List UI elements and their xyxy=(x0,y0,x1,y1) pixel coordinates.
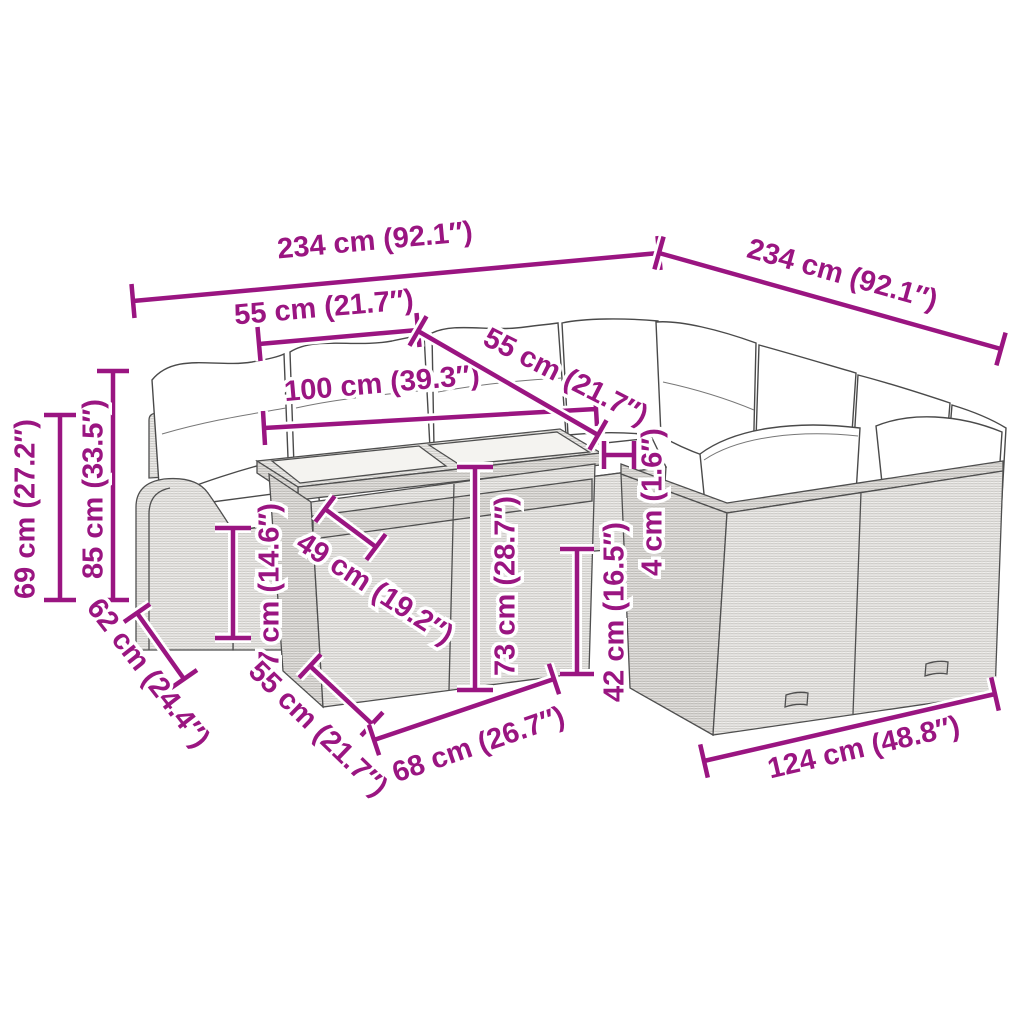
dimension-diagram: 234 cm (92.1″) 234 cm (92.1″) 55 cm (21.… xyxy=(0,0,1024,1024)
dim-69: 69 cm (27.2″) xyxy=(10,415,76,600)
dim-85: 85 cm (33.5″) xyxy=(78,371,129,600)
sofa-front-panel-right xyxy=(713,471,1003,735)
dim-label-37: 37 cm (14.6″) xyxy=(254,503,286,683)
panel-handle-1 xyxy=(785,692,808,707)
diagram-canvas: 234 cm (92.1″) 234 cm (92.1″) 55 cm (21.… xyxy=(0,0,1024,1024)
dim-label-42: 42 cm (16.5″) xyxy=(599,522,631,702)
panel-handle-2 xyxy=(925,661,948,676)
dim-label-68: 68 cm (26.7″) xyxy=(388,700,569,789)
dim-label-85: 85 cm (33.5″) xyxy=(78,399,110,579)
dim-label-73: 73 cm (28.7″) xyxy=(490,496,522,676)
dim-label-69: 69 cm (27.2″) xyxy=(10,419,42,599)
dim-label-4: 4 cm (1.6″) xyxy=(637,428,669,576)
dim-label-234-left: 234 cm (92.1″) xyxy=(276,216,474,266)
